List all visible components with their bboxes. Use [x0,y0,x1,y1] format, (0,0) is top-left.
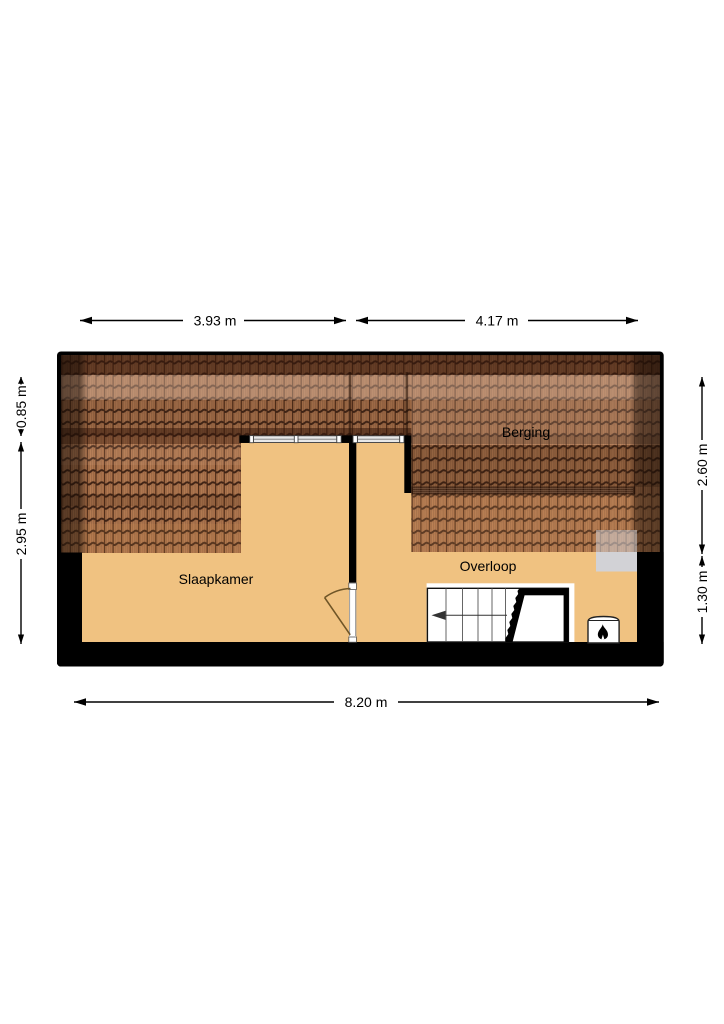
svg-text:3.93 m: 3.93 m [194,312,237,328]
svg-text:2.95 m: 2.95 m [13,513,29,556]
svg-text:Overloop: Overloop [460,558,517,574]
svg-text:8.20 m: 8.20 m [345,694,388,710]
svg-text:4.17 m: 4.17 m [476,312,519,328]
svg-text:1.30 m: 1.30 m [694,571,710,614]
svg-text:Slaapkamer: Slaapkamer [179,571,254,587]
svg-text:Berging: Berging [502,424,550,440]
svg-text:2.60 m: 2.60 m [694,444,710,487]
svg-text:0.85 m: 0.85 m [13,385,29,428]
